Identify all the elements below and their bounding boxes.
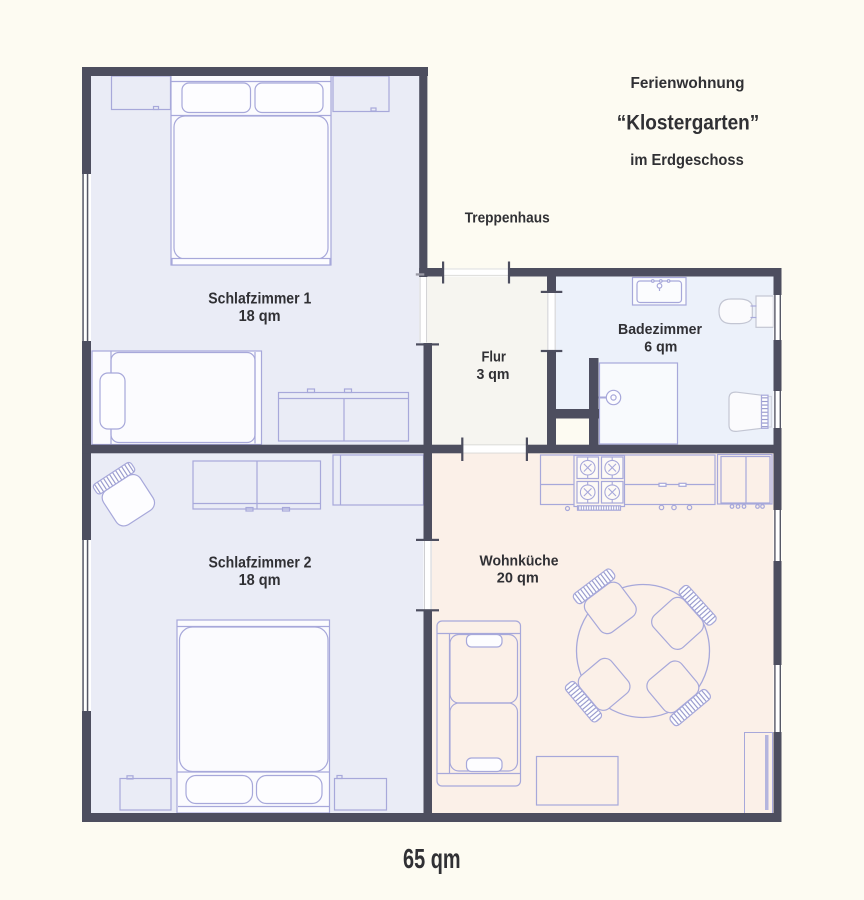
svg-text:Schlafzimmer 1: Schlafzimmer 1	[208, 291, 311, 308]
svg-text:“Klostergarten”: “Klostergarten”	[617, 111, 760, 135]
svg-text:65 qm: 65 qm	[403, 843, 461, 874]
svg-text:Badezimmer: Badezimmer	[618, 321, 702, 338]
svg-text:Flur: Flur	[481, 348, 506, 365]
svg-text:Ferienwohnung: Ferienwohnung	[631, 75, 745, 92]
svg-text:3 qm: 3 qm	[477, 366, 510, 383]
svg-text:6 qm: 6 qm	[644, 339, 677, 356]
svg-text:18 qm: 18 qm	[239, 572, 281, 589]
svg-text:20 qm: 20 qm	[497, 570, 539, 587]
svg-text:im Erdgeschoss: im Erdgeschoss	[630, 152, 744, 169]
svg-text:Schlafzimmer 2: Schlafzimmer 2	[209, 555, 312, 572]
svg-text:Treppenhaus: Treppenhaus	[465, 210, 550, 226]
svg-text:Wohnküche: Wohnküche	[480, 552, 559, 569]
svg-text:18 qm: 18 qm	[239, 308, 281, 325]
